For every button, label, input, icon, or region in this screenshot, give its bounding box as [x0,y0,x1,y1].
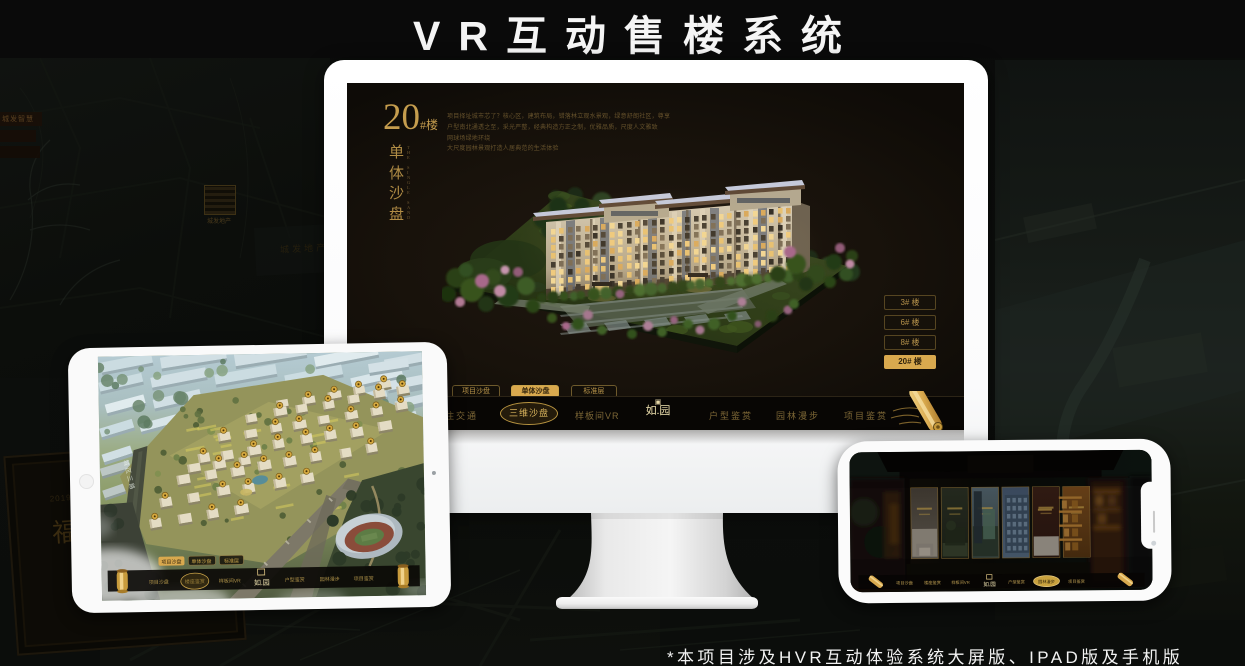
svg-text:如.园: 如.园 [254,578,270,587]
svg-text:项目沙盘: 项目沙盘 [161,558,181,565]
svg-text:项目鉴赏: 项目鉴赏 [354,575,374,582]
svg-text:标准层: 标准层 [224,557,239,564]
svg-text:户型鉴赏: 户型鉴赏 [285,576,305,583]
svg-text:园林漫步: 园林漫步 [320,576,340,583]
svg-text:项目沙盘: 项目沙盘 [149,579,169,586]
svg-text:如.园: 如.园 [983,580,996,588]
svg-text:样板间VR: 样板间VR [219,577,241,584]
svg-text:单体沙盘: 单体沙盘 [191,558,211,565]
